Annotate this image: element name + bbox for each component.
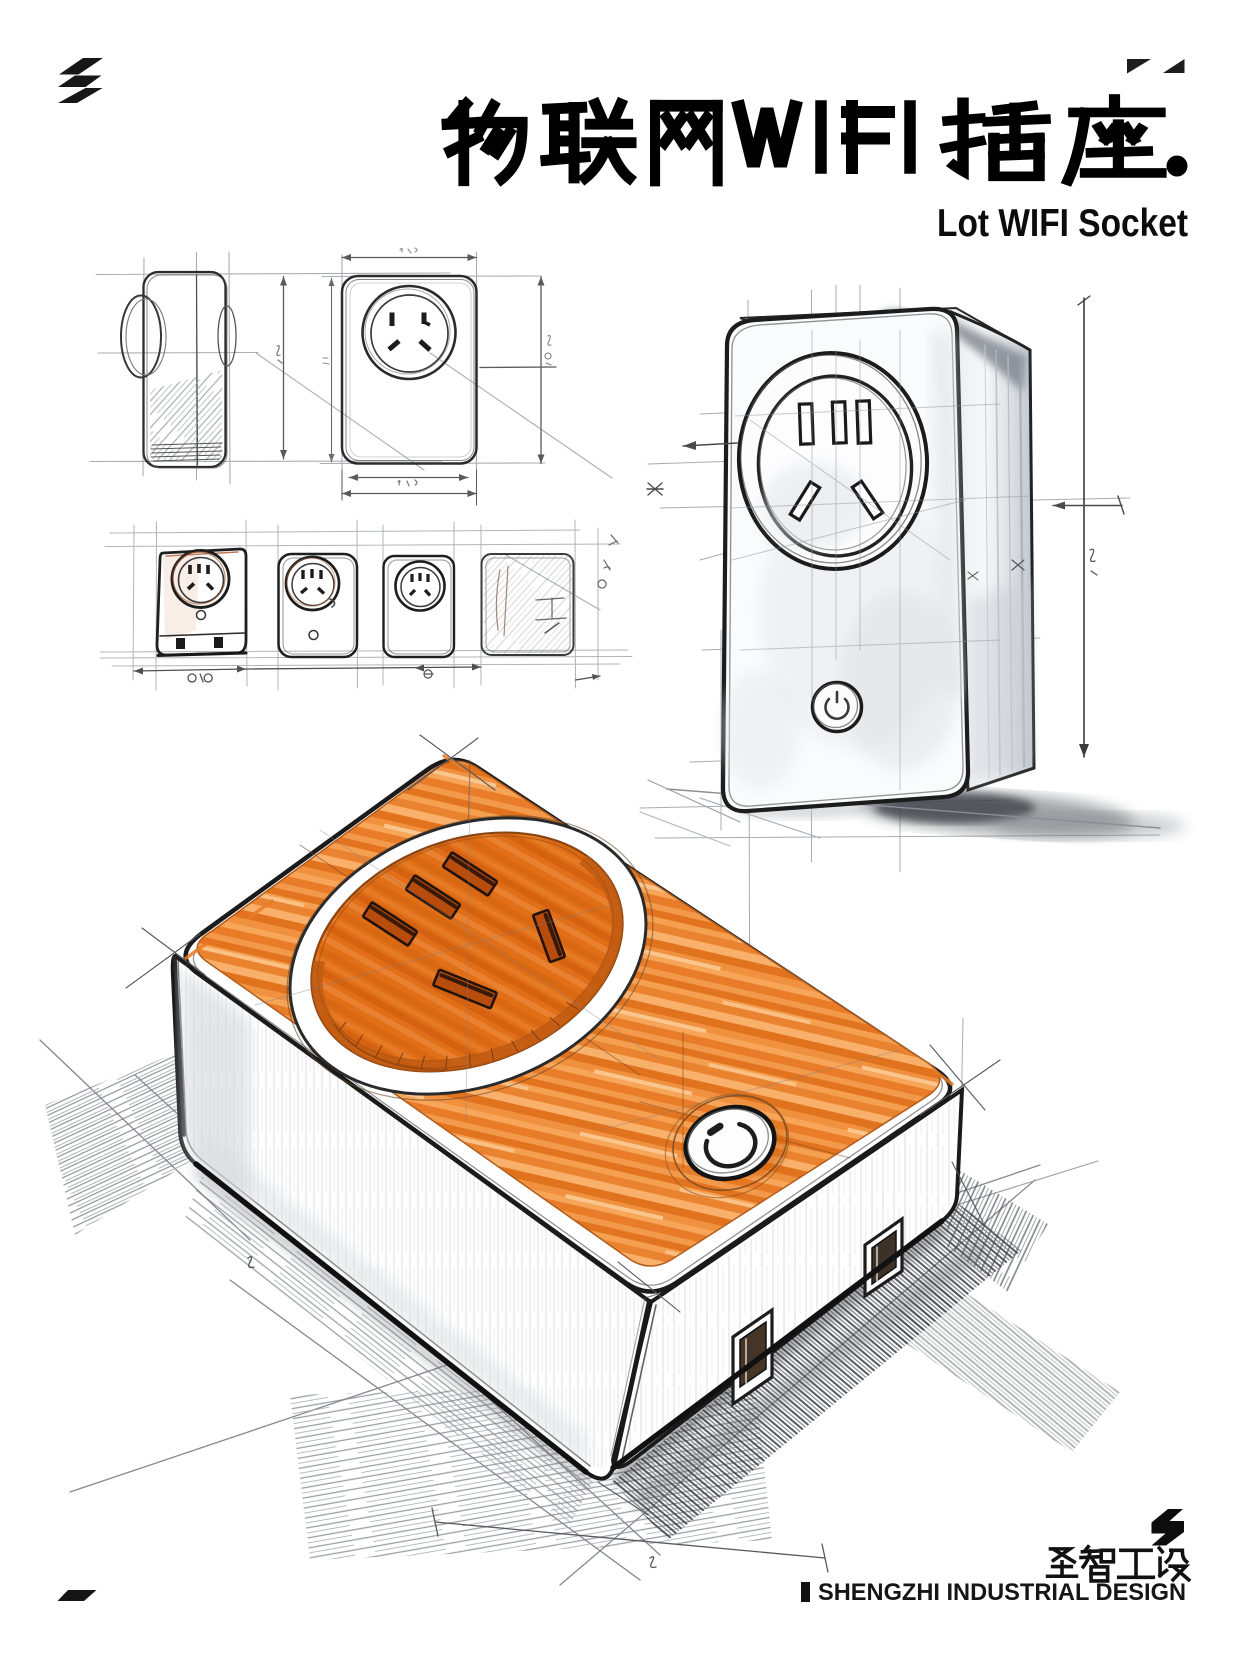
svg-text:Lot WIFI Socket: Lot WIFI Socket bbox=[937, 202, 1188, 245]
svg-text:SHENGZHI INDUSTRIAL DESIGN: SHENGZHI INDUSTRIAL DESIGN bbox=[818, 1579, 1186, 1606]
